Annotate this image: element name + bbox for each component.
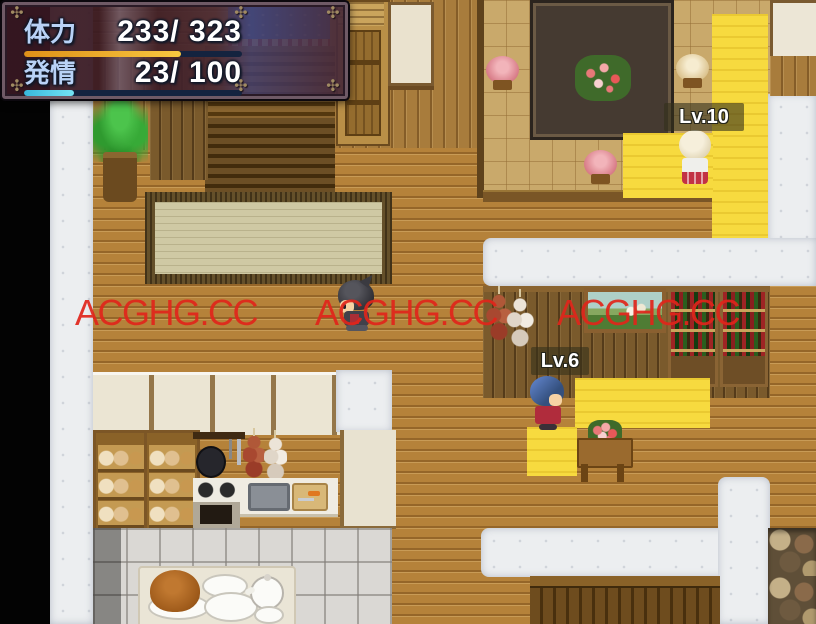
watermark-text: ACGHG.CC bbox=[75, 295, 257, 331]
npc-hair bbox=[679, 130, 711, 160]
npc-dress bbox=[535, 406, 561, 424]
pillar-door bbox=[345, 30, 381, 136]
door-crossbar bbox=[345, 60, 381, 65]
stool bbox=[584, 150, 617, 178]
teapot bbox=[250, 576, 284, 610]
sink bbox=[248, 483, 290, 511]
tatami-mat bbox=[145, 192, 392, 284]
frame-ornament-icon: ✣ bbox=[6, 4, 28, 24]
kitchen-knife bbox=[237, 439, 241, 465]
snow-path-bottom-vert bbox=[718, 477, 770, 624]
frame-ornament-icon: ✣ bbox=[6, 77, 28, 97]
kitchen-shelf bbox=[93, 430, 149, 534]
arousal-gauge-fill bbox=[24, 90, 74, 96]
snow-path-right bbox=[768, 94, 816, 244]
watermark-text: ACGHG.CC bbox=[557, 295, 739, 331]
npc-skirt bbox=[682, 172, 708, 184]
counter-table bbox=[138, 566, 296, 624]
snow-path-mid bbox=[483, 238, 816, 286]
hanging-sausages bbox=[243, 434, 265, 480]
npc-face bbox=[549, 394, 562, 406]
ladle bbox=[229, 439, 232, 459]
lit-floor-tile bbox=[527, 427, 577, 476]
knife bbox=[298, 498, 314, 501]
hp-label: 体力 bbox=[24, 12, 76, 49]
game-viewport[interactable]: ACGHG.CC ACGHG.CC ACGHG.CC Lv.10 Lv.6 体力… bbox=[0, 0, 816, 624]
stool bbox=[486, 56, 519, 84]
hanging-garlic bbox=[264, 436, 287, 482]
kitchen-wall bbox=[93, 372, 340, 435]
npc-blonde[interactable] bbox=[676, 128, 714, 192]
teapot-lid bbox=[264, 574, 271, 581]
hanging-cookware bbox=[193, 430, 245, 482]
cutting-board bbox=[292, 483, 328, 511]
kitchen-tile-dark-column bbox=[93, 528, 121, 624]
staircase-lower bbox=[205, 118, 335, 192]
kitchen-shelf bbox=[144, 430, 200, 534]
tatami-mat-center bbox=[155, 202, 382, 274]
shoji-window bbox=[770, 0, 816, 62]
level-badge-npc-blonde: Lv.10 bbox=[664, 103, 744, 131]
potted-plant bbox=[92, 90, 148, 198]
npc-blue-hair[interactable] bbox=[528, 374, 568, 432]
stove-opening bbox=[200, 505, 232, 524]
roast-turkey bbox=[150, 570, 200, 612]
frame-ornament-icon: ✣ bbox=[230, 77, 252, 97]
window-sill-wall bbox=[770, 56, 816, 96]
arousal-gauge bbox=[24, 90, 242, 96]
plant-pot bbox=[103, 152, 137, 202]
kitchen-panel bbox=[340, 430, 396, 529]
kitchen-counter bbox=[240, 478, 338, 517]
flower-centerpiece bbox=[575, 55, 631, 101]
stove-top bbox=[193, 478, 240, 502]
flower-side-table bbox=[577, 420, 629, 484]
frame-ornament-icon: ✣ bbox=[322, 77, 344, 97]
table-leg bbox=[581, 464, 588, 482]
shoji-screen bbox=[388, 2, 434, 86]
frame-ornament-icon: ✣ bbox=[322, 4, 344, 24]
frying-pan bbox=[196, 446, 226, 478]
room-left-edge bbox=[477, 0, 484, 198]
arousal-value: 23/ 100 bbox=[135, 56, 242, 90]
teacup bbox=[254, 606, 284, 624]
hanging-garlic bbox=[506, 295, 534, 350]
level-badge-npc-blue: Lv.6 bbox=[531, 347, 589, 375]
hp-value: 233/ 323 bbox=[117, 15, 242, 49]
wooden-fence bbox=[530, 576, 720, 624]
arousal-label: 発情 bbox=[24, 53, 76, 90]
rack-bar bbox=[193, 432, 245, 439]
npc-feet bbox=[539, 424, 557, 430]
carrot bbox=[308, 491, 320, 496]
watermark-text: ACGHG.CC bbox=[315, 295, 497, 331]
stove bbox=[193, 478, 240, 528]
cobblestone-path bbox=[768, 528, 816, 624]
table-leg bbox=[617, 464, 624, 482]
frame-ornament-icon: ✣ bbox=[230, 4, 252, 24]
stool bbox=[676, 54, 709, 82]
door-crossbar bbox=[345, 100, 381, 105]
dining-table bbox=[530, 0, 674, 140]
hud-window: 体力 233/ 323 発情 23/ 100 ✣ ✣ ✣ ✣ ✣ ✣ bbox=[0, 0, 350, 101]
snow-patch bbox=[336, 370, 392, 432]
